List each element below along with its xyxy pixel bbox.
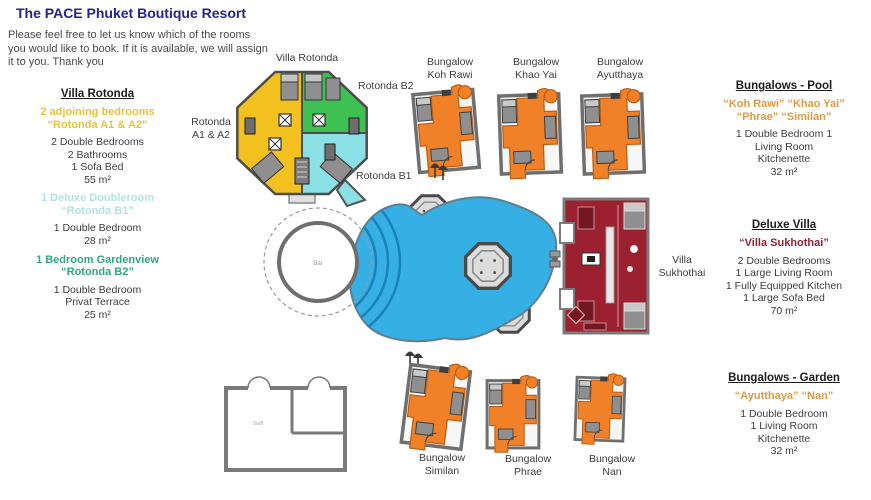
deluxe-villa-details: 2 Double Bedrooms 1 Large Living Room 1 … xyxy=(700,255,868,318)
label-villa-rotonda: Villa Rotonda xyxy=(252,52,362,65)
bungalows-pool-details: 1 Double Bedroom 1 Living Room Kitchenet… xyxy=(700,128,868,178)
label-bungalow-ayutthaya: Bungalow Ayutthaya xyxy=(580,56,660,81)
double-door-icon xyxy=(308,377,330,388)
double-door-icon xyxy=(248,377,270,388)
villa-rotonda-heading: Villa Rotonda xyxy=(10,88,185,100)
bar-label: Bar xyxy=(313,261,322,267)
bungalows-pool-panel: Bungalows - Pool “Koh Rawi” “Khao Yai” “… xyxy=(700,80,868,181)
bungalows-garden-names: “Ayutthaya” “Nan” xyxy=(700,390,868,403)
deluxe-villa-names: “Villa Sukhothai” xyxy=(700,237,868,250)
villa-rotonda-panel: Villa Rotonda 2 adjoining bedrooms “Roto… xyxy=(10,88,185,324)
bungalow-khao-yai-floorplan xyxy=(494,84,565,181)
bungalow-similan-floorplan xyxy=(396,354,475,457)
bungalows-pool-heading: Bungalows - Pool xyxy=(700,80,868,92)
staff-label: Staff xyxy=(253,421,264,427)
page-title: The PACE Phuket Boutique Resort xyxy=(16,5,246,21)
pool-platform-center xyxy=(466,244,511,289)
villa-sukhothai-floorplan xyxy=(548,197,654,337)
label-villa-sukhothai: Villa Sukhothai xyxy=(650,254,714,279)
rotonda-a-details: 2 Double Bedrooms 2 Bathrooms 1 Sofa Bed… xyxy=(10,136,185,186)
bungalows-garden-heading: Bungalows - Garden xyxy=(700,372,868,384)
deluxe-villa-panel: Deluxe Villa “Villa Sukhothai” 2 Double … xyxy=(700,219,868,320)
bungalow-nan-floorplan xyxy=(564,369,637,447)
rotonda-b2-name: 1 Bedroom Gardenview “Rotonda B2” xyxy=(10,254,185,279)
bungalows-garden-details: 1 Double Bedroom 1 Living Room Kitchenet… xyxy=(700,408,868,458)
rotonda-b1-name: 1 Deluxe Doubleroom “Rotonda B1” xyxy=(10,192,185,217)
deluxe-villa-heading: Deluxe Villa xyxy=(700,219,868,231)
bungalow-phrae-floorplan xyxy=(480,372,546,454)
label-rotonda-b1: Rotonda B1 xyxy=(356,170,422,183)
palm-tree-icon xyxy=(430,162,448,182)
label-bungalow-koh-rawi: Bungalow Koh Rawi xyxy=(410,56,490,81)
rotonda-b2-details: 1 Double Bedroom Privat Terrace 25 m² xyxy=(10,284,185,322)
rotonda-a-name: 2 adjoining bedrooms “Rotonda A1 & A2” xyxy=(10,106,185,131)
bungalow-ayutthaya-floorplan xyxy=(577,84,648,181)
label-bungalow-nan: Bungalow Nan xyxy=(570,453,654,478)
label-bungalow-similan: Bungalow Similan xyxy=(400,452,484,477)
resort-map-page: The PACE Phuket Boutique Resort Please f… xyxy=(0,0,871,500)
label-bungalow-phrae: Bungalow Phrae xyxy=(486,453,570,478)
staff-building-floorplan: Staff xyxy=(218,372,348,476)
bungalows-pool-names: “Koh Rawi” “Khao Yai” “Phrae” “Similan” xyxy=(700,98,868,123)
label-bungalow-khao-yai: Bungalow Khao Yai xyxy=(496,56,576,81)
rotonda-b1-details: 1 Double Bedroom 28 m² xyxy=(10,222,185,247)
label-rotonda-a: Rotonda A1 & A2 xyxy=(180,116,242,141)
bungalows-garden-panel: Bungalows - Garden “Ayutthaya” “Nan” 1 D… xyxy=(700,372,868,461)
